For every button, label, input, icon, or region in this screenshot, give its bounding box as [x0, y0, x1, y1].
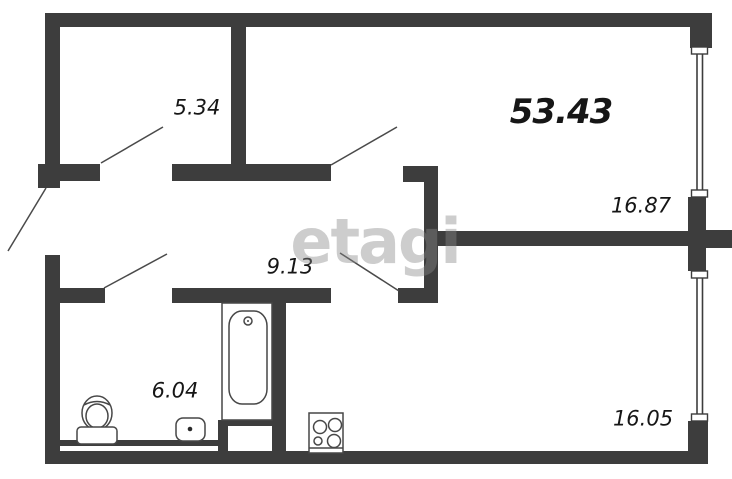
sink-icon: [176, 418, 205, 441]
room-label-kitchen: 16.05: [613, 409, 673, 430]
bathroom-door-swing: [104, 254, 167, 288]
window-icon: [692, 47, 708, 197]
stove-icon: [309, 413, 343, 453]
room-label-bathroom: 6.04: [152, 381, 199, 402]
total-area-label: 53.43: [510, 95, 613, 129]
bathtub-icon: [222, 303, 272, 420]
living-door-swing: [331, 127, 397, 165]
window-icon: [692, 271, 708, 421]
toilet-icon: [77, 396, 117, 444]
entrance-door-swing: [8, 188, 46, 251]
storage-door-swing: [101, 127, 163, 163]
floor-plan: 53.43 5.34 16.87 9.13 6.04 16.05 etagi: [0, 0, 732, 479]
room-label-storage: 5.34: [174, 98, 221, 119]
watermark-text: etagi: [290, 211, 459, 273]
room-label-living: 16.87: [611, 196, 671, 217]
